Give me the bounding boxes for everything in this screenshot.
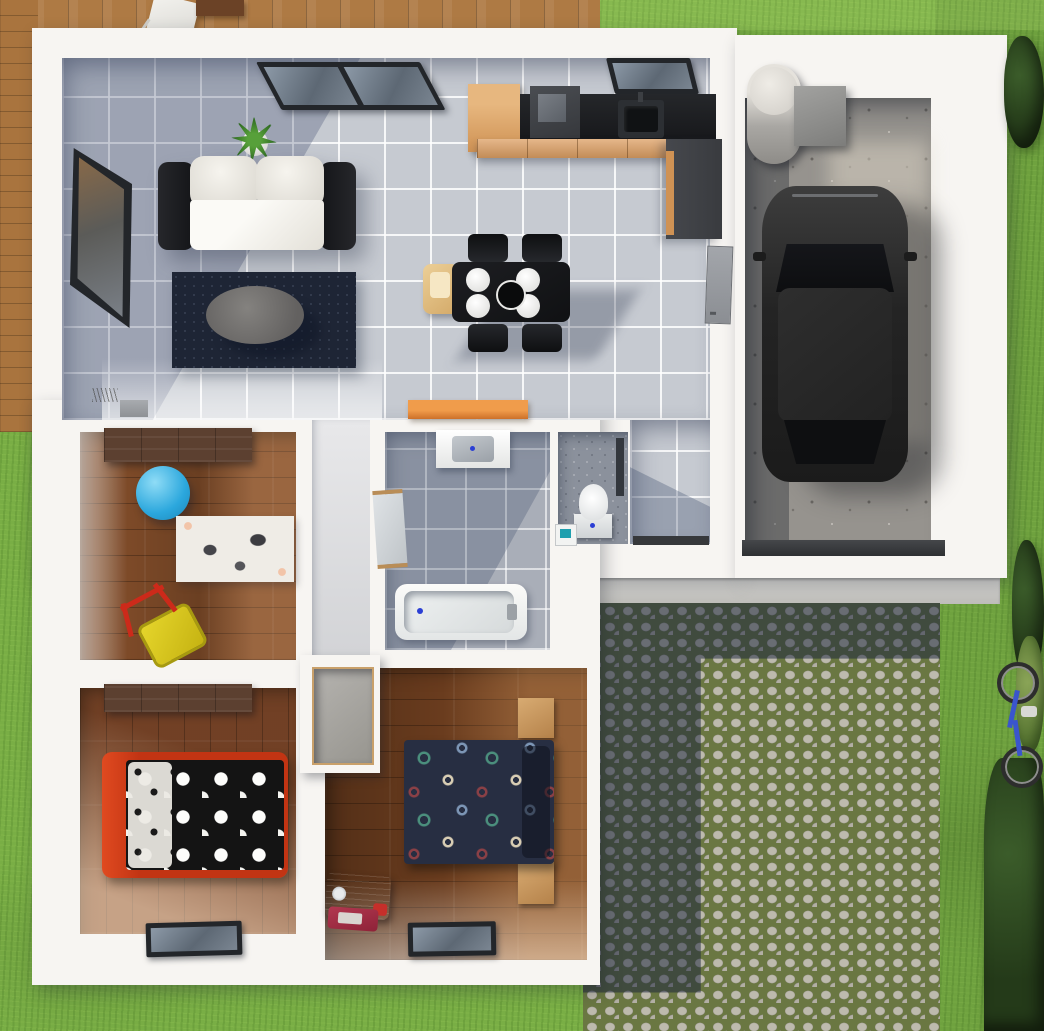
radiator [120, 400, 148, 417]
master-closet [300, 655, 380, 773]
side-cabinet-front [666, 151, 674, 235]
cobblestone-driveway [583, 603, 940, 1031]
nightstand [518, 862, 554, 904]
suitcase-dial [332, 886, 347, 901]
garage-connecting-door [705, 246, 734, 325]
washbasin-vanity [436, 430, 510, 468]
child-bed-frame [102, 752, 288, 878]
hall-shadow [630, 420, 710, 544]
cooktop [530, 86, 580, 138]
dried-twigs-decor [92, 388, 118, 402]
kitchen-window [606, 58, 699, 94]
kitchen-side-counter [666, 139, 722, 239]
orange-doormat [408, 400, 528, 419]
washbasin-drain [470, 446, 475, 451]
living-top-window-glass [344, 67, 438, 105]
boiler-box [794, 86, 846, 146]
kids-wardrobe [104, 428, 252, 462]
serving-bowl [496, 280, 526, 310]
bicycle [993, 662, 1039, 788]
child-bed-pillows [128, 762, 172, 868]
mirror-door [372, 489, 407, 569]
zebra-rug [176, 516, 294, 582]
sofa [158, 156, 356, 250]
dining-chair [522, 234, 562, 262]
nightstand [518, 698, 554, 738]
sofa-armrest-right [320, 162, 356, 250]
lawn-light-top [600, 0, 1044, 30]
child-bedroom-window-glass [151, 926, 238, 952]
luggage-scale-screen [338, 912, 363, 925]
sink-basin [624, 106, 658, 132]
master-bed-duvet [404, 740, 554, 864]
living-top-window [256, 62, 446, 110]
kitchen-window-glass [612, 63, 692, 89]
toilet-bowl [579, 484, 608, 520]
car-mirror [753, 252, 766, 261]
door-handle [710, 312, 716, 315]
car-roof [778, 288, 892, 422]
bathtub-drain [417, 608, 423, 614]
bathtub [395, 584, 527, 640]
car-windshield [776, 244, 894, 292]
garage-door-sill [742, 540, 945, 556]
dining-chair [468, 234, 508, 262]
luggage-scale [327, 906, 378, 931]
plate [466, 294, 490, 318]
child-bedroom-window [146, 921, 243, 958]
master-bedroom-window-glass [413, 926, 491, 951]
high-chair-seat [430, 272, 450, 298]
bicycle-basket [1021, 706, 1037, 717]
dining-table [452, 262, 570, 322]
corridor-floor [312, 420, 370, 662]
cooktop-pan [538, 94, 566, 122]
dining-chair [522, 324, 562, 352]
driveway-shadow [583, 603, 940, 1031]
terrace-table [196, 0, 244, 16]
car-rear-window [784, 420, 886, 464]
master-closet-interior [312, 667, 374, 765]
wc-hand-basin [555, 524, 577, 546]
kitchen-sink [618, 100, 664, 138]
master-bedroom-window [408, 921, 497, 957]
kitchen-base-cabinets [477, 139, 677, 158]
sink-faucet [638, 92, 643, 102]
water-heater [747, 64, 801, 164]
living-top-window-glass [264, 67, 358, 105]
water-heater-top [750, 67, 798, 115]
dining-chair [468, 324, 508, 352]
toilet-flush-button [590, 523, 595, 528]
wc-hand-basin-bowl [560, 529, 571, 538]
hedge-bush [984, 758, 1044, 1031]
floor-plan-render [0, 0, 1044, 1031]
coffee-table [206, 286, 304, 344]
car-hood-highlight [792, 194, 878, 197]
bathtub-faucet [507, 604, 517, 620]
entrance-step [583, 578, 1000, 604]
wc-door-edge [616, 438, 624, 496]
terrace-deck-top [0, 0, 600, 30]
entrance-door-sill [633, 536, 709, 545]
car [762, 186, 908, 482]
blue-gym-ball [136, 466, 190, 520]
hall-floor [630, 420, 710, 544]
hedge-bush [1004, 36, 1044, 148]
sofa-armrest-left [158, 162, 194, 250]
car-mirror [904, 252, 917, 261]
master-bed-pillows [522, 746, 550, 858]
plate [466, 268, 490, 292]
child-wardrobe [104, 684, 252, 712]
sofa-seat [190, 200, 324, 250]
